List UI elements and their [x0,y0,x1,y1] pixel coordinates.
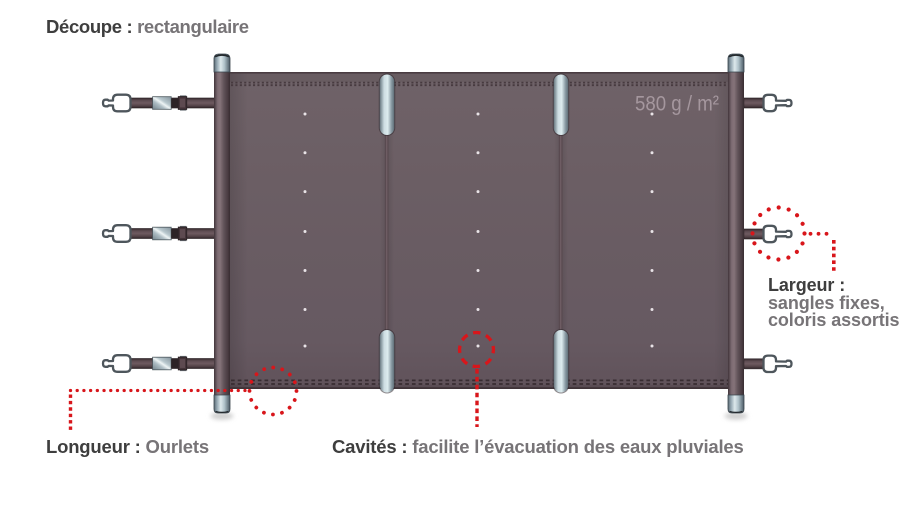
svg-text:580 g / m²: 580 g / m² [635,92,719,116]
